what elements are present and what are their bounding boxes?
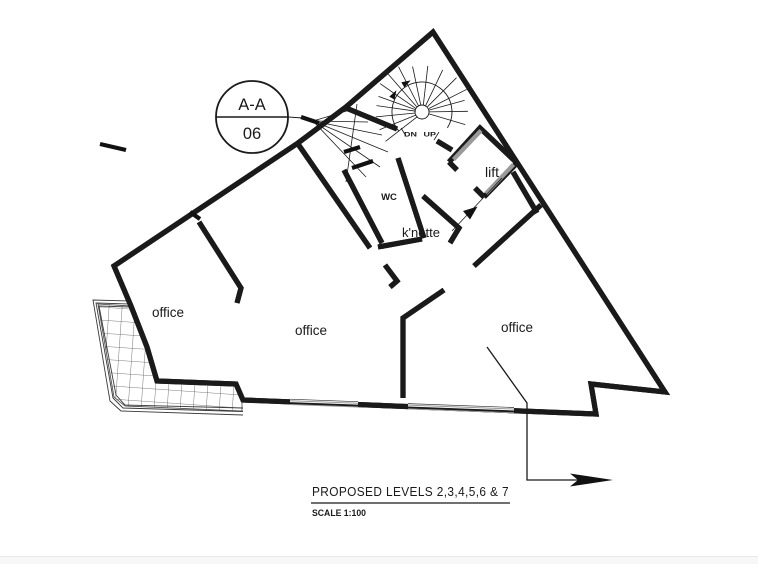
drawing-scale: SCALE 1:100 [312,508,366,518]
office-label-left: office [152,305,184,320]
window-bottom-strip [0,556,758,564]
stair-treads [376,66,468,141]
section-marker-number: 06 [243,125,261,143]
stair-newel [415,105,429,119]
walls [114,32,665,414]
leader-arrow [487,347,613,487]
title-block: PROPOSED LEVELS 2,3,4,5,6 & 7 SCALE 1:10… [311,485,510,518]
floor-plan-canvas: DN UP lift A-A [0,0,758,564]
section-marker-label: A-A [238,96,266,114]
floor-plan-page: DN UP lift A-A [0,0,758,564]
office-label-middle: office [295,323,327,338]
lift-wall-gray [454,131,482,160]
balcony-hatch [98,304,242,411]
spiral-staircase: DN UP [376,66,468,141]
lift-label: lift [485,164,499,180]
office-label-right: office [501,320,533,335]
lift-entry-line [452,178,502,231]
kitchenette-label: k'nette [402,225,440,240]
wc-label: WC [381,192,397,203]
stair-winder-void [313,104,388,182]
stair-direction-label: DN UP [404,132,437,139]
section-marker: A-A 06 [216,81,303,153]
drawing-title: PROPOSED LEVELS 2,3,4,5,6 & 7 [312,485,509,499]
